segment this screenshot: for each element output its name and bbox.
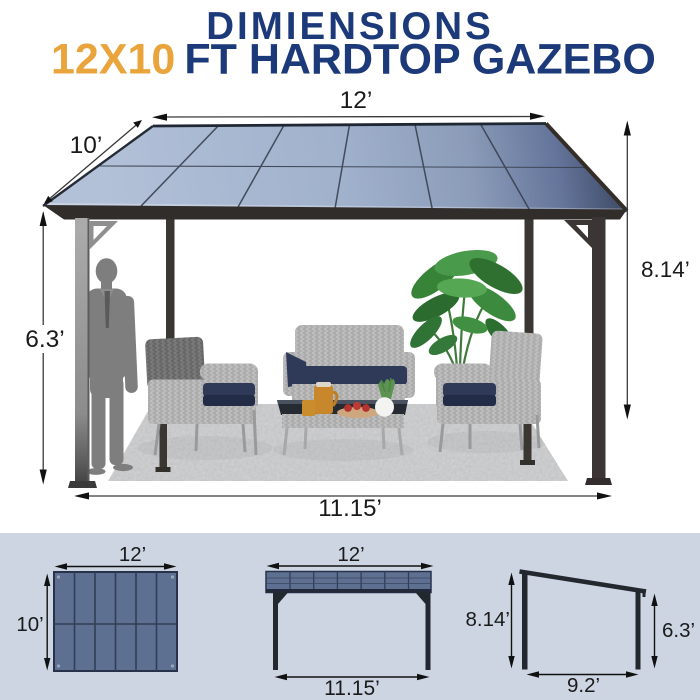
svg-text:10’: 10’ [70,132,103,159]
svg-text:12’: 12’ [337,543,364,566]
svg-text:8.14’: 8.14’ [641,257,690,282]
svg-text:6.3’: 6.3’ [25,326,65,353]
svg-text:11.15’: 11.15’ [324,677,380,700]
svg-text:12’: 12’ [119,543,146,566]
svg-text:12’: 12’ [340,87,373,114]
svg-text:9.2’: 9.2’ [567,674,600,697]
svg-text:10’: 10’ [16,613,43,636]
svg-text:6.3’: 6.3’ [662,619,695,642]
svg-text:12X10FT HARDTOP GAZEBO: 12X10FT HARDTOP GAZEBO [51,36,656,84]
svg-text:11.15’: 11.15’ [318,495,382,522]
svg-text:8.14’: 8.14’ [466,608,510,631]
